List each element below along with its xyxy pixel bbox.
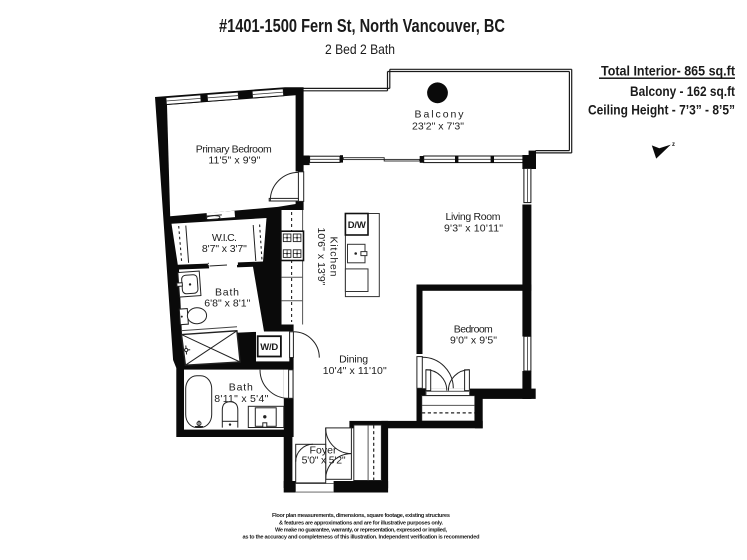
svg-text:Living Room: Living Room — [446, 211, 501, 223]
svg-text:Balcony - 162 sq.ft: Balcony - 162 sq.ft — [630, 83, 735, 99]
svg-text:We make no guarantee, warranty: We make no guarantee, warranty, or repre… — [275, 528, 447, 534]
svg-text:z: z — [672, 142, 675, 148]
svg-text:8'7" x 3'7": 8'7" x 3'7" — [202, 243, 247, 255]
svg-text:W/D: W/D — [260, 342, 278, 353]
svg-text:2 Bed 2 Bath: 2 Bed 2 Bath — [325, 41, 395, 57]
svg-text:10'4" x 11'10": 10'4" x 11'10" — [323, 365, 387, 377]
svg-text:6'8" x 8'1": 6'8" x 8'1" — [204, 297, 250, 309]
svg-text:Ceiling Height - 7’3” - 8’5”: Ceiling Height - 7’3” - 8’5” — [588, 102, 735, 118]
svg-text:9'3" x 10'11": 9'3" x 10'11" — [444, 222, 503, 234]
svg-text:Kitchen: Kitchen — [328, 237, 340, 277]
svg-text:Dining: Dining — [339, 354, 368, 366]
svg-text:9'0" x 9'5": 9'0" x 9'5" — [450, 335, 497, 347]
svg-text:D/W: D/W — [348, 220, 366, 231]
svg-text:8'11" x 5'4": 8'11" x 5'4" — [214, 393, 268, 405]
svg-text:11'5" x 9'9": 11'5" x 9'9" — [208, 155, 260, 167]
svg-text:as to the accuracy and complet: as to the accuracy and completeness of t… — [243, 535, 481, 541]
svg-text:& features are approximations: & features are approximations and are fo… — [279, 520, 443, 526]
svg-text:Floor plan measurements, dimen: Floor plan measurements, dimensions, squ… — [272, 513, 450, 519]
svg-text:Total Interior- 865 sq.ft: Total Interior- 865 sq.ft — [601, 63, 735, 79]
svg-text:5'0" x 5'2": 5'0" x 5'2" — [302, 455, 346, 467]
svg-text:23'2" x 7'3": 23'2" x 7'3" — [412, 120, 464, 132]
svg-text:#1401-1500 Fern St, North Vanc: #1401-1500 Fern St, North Vancouver, BC — [219, 16, 505, 36]
svg-text:Bedroom: Bedroom — [454, 323, 493, 335]
svg-text:Primary Bedroom: Primary Bedroom — [196, 143, 272, 155]
svg-text:10'6" x 13'9": 10'6" x 13'9" — [315, 228, 327, 286]
svg-text:Bath: Bath — [229, 382, 253, 394]
